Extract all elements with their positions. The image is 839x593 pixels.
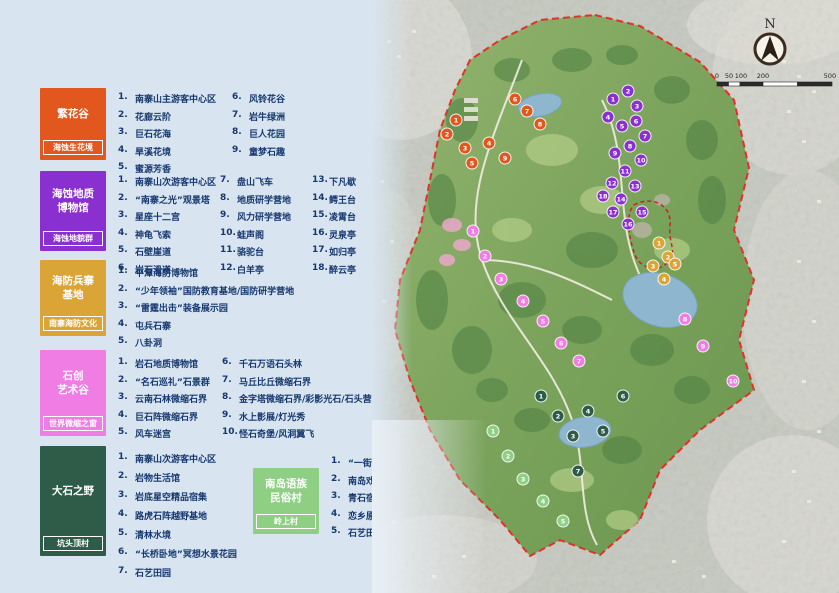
legend-item-number: 4.	[118, 145, 135, 158]
svg-text:3: 3	[635, 102, 640, 110]
svg-text:4: 4	[541, 497, 546, 505]
svg-text:1: 1	[471, 227, 476, 235]
legend-item-label: “雷霆出击”装备展示园	[135, 301, 228, 314]
svg-text:5: 5	[620, 122, 625, 130]
map-marker: 2	[552, 410, 564, 422]
map-marker: 4	[602, 111, 614, 123]
map-area: 1234567891234567891011121314151617181234…	[372, 0, 839, 593]
legend-item: 4.旱溪花境	[118, 145, 232, 158]
legend-item: 4.神龟飞索	[118, 228, 220, 241]
svg-text:2: 2	[666, 253, 671, 261]
svg-text:2: 2	[483, 252, 488, 260]
svg-text:3: 3	[651, 262, 656, 270]
legend-item-number: 2.	[118, 110, 135, 123]
legend-item-number: 5.	[118, 245, 135, 258]
legend-item-number: 14.	[312, 193, 329, 206]
legend-item-number: 3.	[118, 301, 135, 314]
legend-item-number: 2.	[118, 375, 135, 388]
legend-item-label: 花廊云阶	[135, 110, 171, 123]
category-title: 大石之野	[40, 446, 106, 536]
legend-item-number: 3.	[118, 392, 135, 405]
legend-item-number: 8.	[220, 193, 237, 206]
legend-item-label: 巨石阵微缩石界	[135, 410, 198, 423]
legend-item-label: 岩石地质博物馆	[135, 357, 198, 370]
legend-item-label: 岩底星空精品宿集	[135, 490, 207, 503]
legend-item: 4.路虎石阵越野基地	[118, 509, 263, 522]
category-box: 南岛语族 民俗村岭上村	[253, 468, 319, 534]
category-title: 南岛语族 民俗村	[253, 468, 319, 514]
map-marker: 8	[534, 118, 546, 130]
legend-item-number: 2.	[118, 284, 135, 297]
map-marker: 2	[502, 450, 514, 462]
svg-text:11: 11	[620, 167, 630, 175]
map-marker: 14	[615, 193, 627, 205]
legend-item-number: 1.	[118, 357, 135, 370]
svg-text:9: 9	[503, 154, 508, 162]
legend-item-label: 岩牛绿洲	[249, 110, 285, 123]
masterplan-poster: 繁花谷海蚀生花境1.南寨山主游客中心区2.花廊云阶3.巨石花海4.旱溪花境5.蜜…	[0, 0, 839, 593]
category-tag: 海蚀生花境	[43, 140, 103, 155]
legend-item: 3.巨石花海	[118, 127, 232, 140]
svg-text:12: 12	[607, 179, 616, 187]
legend-item-number: 3.	[331, 491, 348, 504]
map-marker: 6	[617, 390, 629, 402]
map-marker: 7	[521, 105, 533, 117]
svg-text:7: 7	[643, 132, 648, 140]
legend-item-label: 南寨山次游客中心区	[135, 175, 216, 188]
svg-text:4: 4	[662, 275, 667, 283]
map-marker: 5	[466, 157, 478, 169]
legend-item-number: 4.	[118, 228, 135, 241]
map-marker: 1	[450, 114, 462, 126]
legend-item-label: 巨人花园	[249, 127, 285, 140]
svg-text:8: 8	[683, 315, 688, 323]
svg-text:10: 10	[728, 377, 738, 385]
category-title: 海蚀地质 博物馆	[40, 171, 106, 231]
map-marker: 18	[597, 190, 609, 202]
legend-item-label: 下凡歇	[329, 175, 356, 188]
category-box: 大石之野坑头顶村	[40, 446, 106, 556]
map-marker: 4	[483, 137, 495, 149]
legend-item-label: 童梦石趣	[249, 145, 285, 158]
legend-item-number: 6.	[232, 92, 249, 105]
category-tag: 岭上村	[256, 514, 316, 529]
svg-text:3: 3	[521, 475, 526, 483]
legend-item-label: 风车迷宫	[135, 427, 171, 440]
legend-item-number: 15.	[312, 210, 329, 223]
map-marker: 11	[619, 165, 631, 177]
legend-item-label: 凌霄台	[329, 210, 356, 223]
svg-text:2: 2	[506, 452, 511, 460]
map-marker: 9	[609, 147, 621, 159]
map-marker: 5	[669, 258, 681, 270]
map-marker: 1	[653, 237, 665, 249]
map-marker: 8	[679, 313, 691, 325]
legend-item-number: 4.	[118, 319, 135, 332]
map-marker: 6	[630, 115, 642, 127]
legend-item-number: 5.	[118, 336, 135, 349]
svg-text:5: 5	[673, 260, 678, 268]
map-marker: 4	[658, 273, 670, 285]
map-marker: 4	[517, 295, 529, 307]
legend-item: 2.岩物生活馆	[118, 471, 263, 484]
svg-text:18: 18	[598, 192, 608, 200]
svg-text:8: 8	[628, 142, 633, 150]
legend-item-label: 八卦洞	[135, 336, 162, 349]
svg-text:6: 6	[559, 339, 564, 347]
svg-text:7: 7	[525, 107, 530, 115]
legend-item-label: 巨石花海	[135, 127, 171, 140]
svg-text:8: 8	[538, 120, 543, 128]
svg-text:1: 1	[491, 427, 496, 435]
category-tag: 海蚀地貌群	[43, 231, 103, 246]
svg-text:15: 15	[637, 208, 647, 216]
svg-text:1: 1	[539, 392, 544, 400]
legend-item: 3.“雷霆出击”装备展示园	[118, 301, 370, 314]
map-marker: 3	[647, 260, 659, 272]
map-marker: 8	[624, 140, 636, 152]
legend-item: 1.南寨山次游客中心区	[118, 452, 263, 465]
legend-item: 2.花廊云阶	[118, 110, 232, 123]
map-marker: 1	[487, 425, 499, 437]
svg-text:6: 6	[513, 95, 518, 103]
svg-text:0: 0	[715, 72, 719, 80]
category-tag: 南寨海防文化	[43, 316, 103, 331]
map-marker: 3	[459, 142, 471, 154]
legend-item-label: 蛙声阁	[237, 228, 264, 241]
legend-item: 10.怪石奇堡/风洞翼飞	[222, 427, 387, 440]
legend-item: 5.八卦洞	[118, 336, 370, 349]
legend-item: 1.南寨山次游客中心区	[118, 175, 220, 188]
legend-item: 6.风铃花谷	[232, 92, 344, 105]
legend-item-number: 11.	[220, 245, 237, 258]
svg-text:50: 50	[725, 72, 733, 80]
map-marker: 5	[597, 425, 609, 437]
legend-item-label: 路虎石阵越野基地	[135, 509, 207, 522]
legend-item-label: 金字塔微缩石界/彩影光石/石头营地	[239, 392, 381, 405]
legend-item: 8.巨人花园	[232, 127, 344, 140]
map-marker: 3	[567, 430, 579, 442]
legend-item-label: “南寨之光”观景塔	[135, 193, 210, 206]
legend-item-number: 6.	[222, 357, 239, 370]
map-marker: 2	[622, 85, 634, 97]
legend-item-label: 千石万语石头林	[239, 357, 302, 370]
legend-item-label: 鳄王台	[329, 193, 356, 206]
legend-item-number: 9.	[222, 410, 239, 423]
svg-text:10: 10	[636, 156, 646, 164]
svg-text:6: 6	[621, 392, 626, 400]
svg-text:3: 3	[571, 432, 576, 440]
corner-fade	[372, 420, 487, 593]
svg-text:9: 9	[613, 149, 618, 157]
svg-text:2: 2	[626, 87, 631, 95]
legend-item-number: 13.	[312, 175, 329, 188]
legend-item: 8.地质研学营地	[220, 193, 312, 206]
category-title: 石创 艺术谷	[40, 350, 106, 416]
map-marker: 4	[582, 405, 594, 417]
legend-item-number: 4.	[118, 509, 135, 522]
legend-item: 5.石壁崖道	[118, 245, 220, 258]
legend-item: 9.童梦石趣	[232, 145, 344, 158]
legend-item: 2.“南寨之光”观景塔	[118, 193, 220, 206]
legend-item-number: 1.	[118, 92, 135, 105]
map-marker: 5	[537, 315, 549, 327]
map-marker: 3	[517, 473, 529, 485]
legend-section-4: 大石之野坑头顶村1.南寨山次游客中心区2.岩物生活馆3.岩底星空精品宿集4.路虎…	[40, 446, 263, 585]
svg-text:3: 3	[463, 144, 468, 152]
legend-item: 1.南寨山主游客中心区	[118, 92, 232, 105]
legend-item: 2.“名石巡礼”石景群	[118, 375, 222, 388]
svg-text:2: 2	[445, 130, 450, 138]
legend-item-label: 骆驼台	[237, 245, 264, 258]
svg-text:N: N	[764, 17, 775, 32]
svg-text:5: 5	[541, 317, 546, 325]
legend-item-number: 5.	[331, 526, 348, 539]
legend-item: 7.马丘比丘微缩石界	[222, 375, 387, 388]
legend-item-label: 屯兵石寨	[135, 319, 171, 332]
map-marker: 4	[537, 495, 549, 507]
svg-text:4: 4	[586, 407, 591, 415]
legend-item-number: 17.	[312, 245, 329, 258]
legend-item-label: 水上影展/灯光秀	[239, 410, 305, 423]
map-marker: 10	[727, 375, 739, 387]
legend-item: 6.千石万语石头林	[222, 357, 387, 370]
category-box: 繁花谷海蚀生花境	[40, 88, 106, 160]
legend-item: 6.“长桥卧地”冥想水景花园	[118, 547, 263, 560]
svg-text:200: 200	[757, 72, 769, 80]
legend-item-label: 神龟飞索	[135, 228, 171, 241]
svg-text:5: 5	[561, 517, 566, 525]
legend-item-label: 风铃花谷	[249, 92, 285, 105]
legend-item-number: 1.	[118, 266, 135, 279]
svg-text:100: 100	[735, 72, 747, 80]
legend-item-label: “名石巡礼”石景群	[135, 375, 210, 388]
svg-text:16: 16	[623, 220, 633, 228]
legend-item: 11.骆驼台	[220, 245, 312, 258]
legend-item: 3.岩底星空精品宿集	[118, 490, 263, 503]
map-marker: 2	[479, 250, 491, 262]
legend-item: 5.清林水境	[118, 528, 263, 541]
map-marker: 1	[535, 390, 547, 402]
legend-item-label: 风力研学营地	[237, 210, 291, 223]
svg-text:5: 5	[601, 427, 606, 435]
legend-item-label: 石艺田园	[135, 566, 171, 579]
legend-item-label: 平潭海防博物馆	[135, 266, 198, 279]
legend-item-number: 3.	[118, 210, 135, 223]
legend-item-label: 南寨山主游客中心区	[135, 92, 216, 105]
svg-text:1: 1	[611, 95, 616, 103]
map-marker: 7	[572, 465, 584, 477]
svg-text:500: 500	[824, 72, 836, 80]
legend-item-number: 1.	[118, 452, 135, 465]
legend-item-number: 8.	[232, 127, 249, 140]
map-marker: 1	[607, 93, 619, 105]
svg-text:17: 17	[608, 208, 617, 216]
legend-item-label: 地质研学营地	[237, 193, 291, 206]
legend-item-number: 6.	[118, 547, 135, 560]
legend-item: 9.风力研学营地	[220, 210, 312, 223]
legend-item-number: 10.	[220, 228, 237, 241]
category-box: 海防兵寨 基地南寨海防文化	[40, 260, 106, 336]
svg-text:4: 4	[606, 113, 611, 121]
map-marker: 5	[616, 120, 628, 132]
svg-text:6: 6	[634, 117, 639, 125]
legend-item: 7.石艺田园	[118, 566, 263, 579]
svg-text:14: 14	[616, 195, 626, 203]
map-marker: 7	[639, 130, 651, 142]
map-marker: 15	[636, 206, 648, 218]
svg-text:2: 2	[556, 412, 561, 420]
legend-item-number: 7.	[220, 175, 237, 188]
map-marker: 6	[555, 337, 567, 349]
map-marker: 2	[441, 128, 453, 140]
svg-text:13: 13	[630, 182, 639, 190]
legend-item-label: 盘山飞车	[237, 175, 273, 188]
legend-item: 4.屯兵石寨	[118, 319, 370, 332]
site-map: 1234567891234567891011121314151617181234…	[372, 0, 839, 593]
map-marker: 12	[606, 177, 618, 189]
legend-item: 5.风车迷宫	[118, 427, 222, 440]
legend-item-number: 1.	[118, 175, 135, 188]
legend-item: 3.星座十二宫	[118, 210, 220, 223]
legend-item-number: 8.	[222, 392, 239, 405]
svg-text:7: 7	[577, 357, 582, 365]
legend-item-number: 7.	[232, 110, 249, 123]
category-tag: 坑头顶村	[43, 536, 103, 551]
legend-item-label: 旱溪花境	[135, 145, 171, 158]
legend-item-number: 1.	[331, 456, 348, 469]
category-title: 海防兵寨 基地	[40, 260, 106, 316]
svg-text:3: 3	[499, 275, 504, 283]
legend-item-label: 岩物生活馆	[135, 471, 180, 484]
legend-item: 3.云南石林微缩石界	[118, 392, 222, 405]
legend-item: 1.平潭海防博物馆	[118, 266, 370, 279]
legend-section-2: 海防兵寨 基地南寨海防文化1.平潭海防博物馆2.“少年领袖”国防教育基地/国防研…	[40, 260, 370, 354]
svg-text:1: 1	[657, 239, 662, 247]
svg-text:5: 5	[470, 159, 475, 167]
legend-item-label: 云南石林微缩石界	[135, 392, 207, 405]
legend-item-number: 7.	[222, 375, 239, 388]
legend-item-number: 10.	[222, 427, 239, 440]
map-marker: 7	[573, 355, 585, 367]
legend-item-number: 2.	[118, 471, 135, 484]
legend-item: 8.金字塔微缩石界/彩影光石/石头营地	[222, 392, 387, 405]
category-title: 繁花谷	[40, 88, 106, 140]
legend-item: 2.“少年领袖”国防教育基地/国防研学营地	[118, 284, 370, 297]
legend-item-number: 4.	[331, 509, 348, 522]
legend-item-label: “长桥卧地”冥想水景花园	[135, 547, 237, 560]
svg-text:4: 4	[487, 139, 492, 147]
map-marker: 9	[697, 340, 709, 352]
map-marker: 5	[557, 515, 569, 527]
svg-text:7: 7	[576, 467, 581, 475]
legend-item-number: 5.	[118, 528, 135, 541]
legend-item-label: 马丘比丘微缩石界	[239, 375, 311, 388]
legend-item-label: 石壁崖道	[135, 245, 171, 258]
legend-item: 1.岩石地质博物馆	[118, 357, 222, 370]
legend-item-label: 如归亭	[329, 245, 356, 258]
legend-item-label: 南寨山次游客中心区	[135, 452, 216, 465]
legend-item-label: 清林水境	[135, 528, 171, 541]
legend-section-3: 石创 艺术谷世界微缩之窗1.岩石地质博物馆2.“名石巡礼”石景群3.云南石林微缩…	[40, 350, 387, 445]
map-marker: 3	[631, 100, 643, 112]
map-marker: 16	[622, 218, 634, 230]
legend-item-label: 灵泉亭	[329, 228, 356, 241]
map-marker: 17	[607, 206, 619, 218]
map-marker: 1	[467, 225, 479, 237]
category-box: 石创 艺术谷世界微缩之窗	[40, 350, 106, 436]
legend-item-number: 9.	[220, 210, 237, 223]
map-marker: 9	[499, 152, 511, 164]
legend-section-0: 繁花谷海蚀生花境1.南寨山主游客中心区2.花廊云阶3.巨石花海4.旱溪花境5.蜜…	[40, 88, 344, 180]
legend-item: 9.水上影展/灯光秀	[222, 410, 387, 423]
map-marker: 6	[509, 93, 521, 105]
legend-item: 7.岩牛绿洲	[232, 110, 344, 123]
legend-item: 10.蛙声阁	[220, 228, 312, 241]
legend-item-label: 怪石奇堡/风洞翼飞	[239, 427, 314, 440]
legend-item-label: “少年领袖”国防教育基地/国防研学营地	[135, 284, 294, 297]
legend-item-number: 9.	[232, 145, 249, 158]
legend-item: 4.巨石阵微缩石界	[118, 410, 222, 423]
svg-text:9: 9	[701, 342, 706, 350]
legend-item-number: 2.	[331, 474, 348, 487]
category-box: 海蚀地质 博物馆海蚀地貌群	[40, 171, 106, 251]
svg-text:1: 1	[454, 116, 459, 124]
map-marker: 10	[635, 154, 647, 166]
svg-text:4: 4	[521, 297, 526, 305]
legend-item-label: 星座十二宫	[135, 210, 180, 223]
map-marker: 3	[495, 273, 507, 285]
legend-item-number: 5.	[118, 427, 135, 440]
legend-item-number: 16.	[312, 228, 329, 241]
legend-item-number: 3.	[118, 490, 135, 503]
legend-item-number: 4.	[118, 410, 135, 423]
category-tag: 世界微缩之窗	[43, 416, 103, 431]
legend-item: 7.盘山飞车	[220, 175, 312, 188]
legend-item-number: 7.	[118, 566, 135, 579]
map-marker: 13	[629, 180, 641, 192]
legend-item-number: 2.	[118, 193, 135, 206]
legend-item-number: 3.	[118, 127, 135, 140]
